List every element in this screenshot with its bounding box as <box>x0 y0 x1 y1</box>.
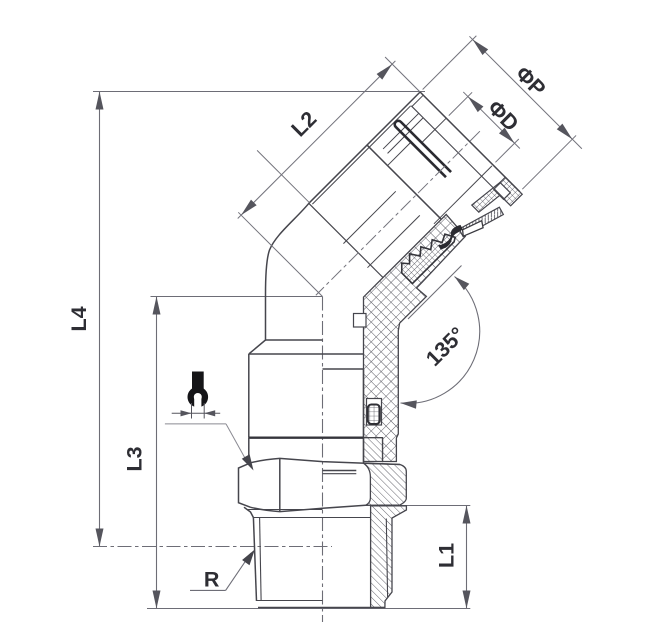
svg-text:L1: L1 <box>435 543 459 568</box>
svg-text:L4: L4 <box>67 306 91 331</box>
svg-text:L3: L3 <box>123 446 147 471</box>
svg-text:R: R <box>204 568 220 592</box>
